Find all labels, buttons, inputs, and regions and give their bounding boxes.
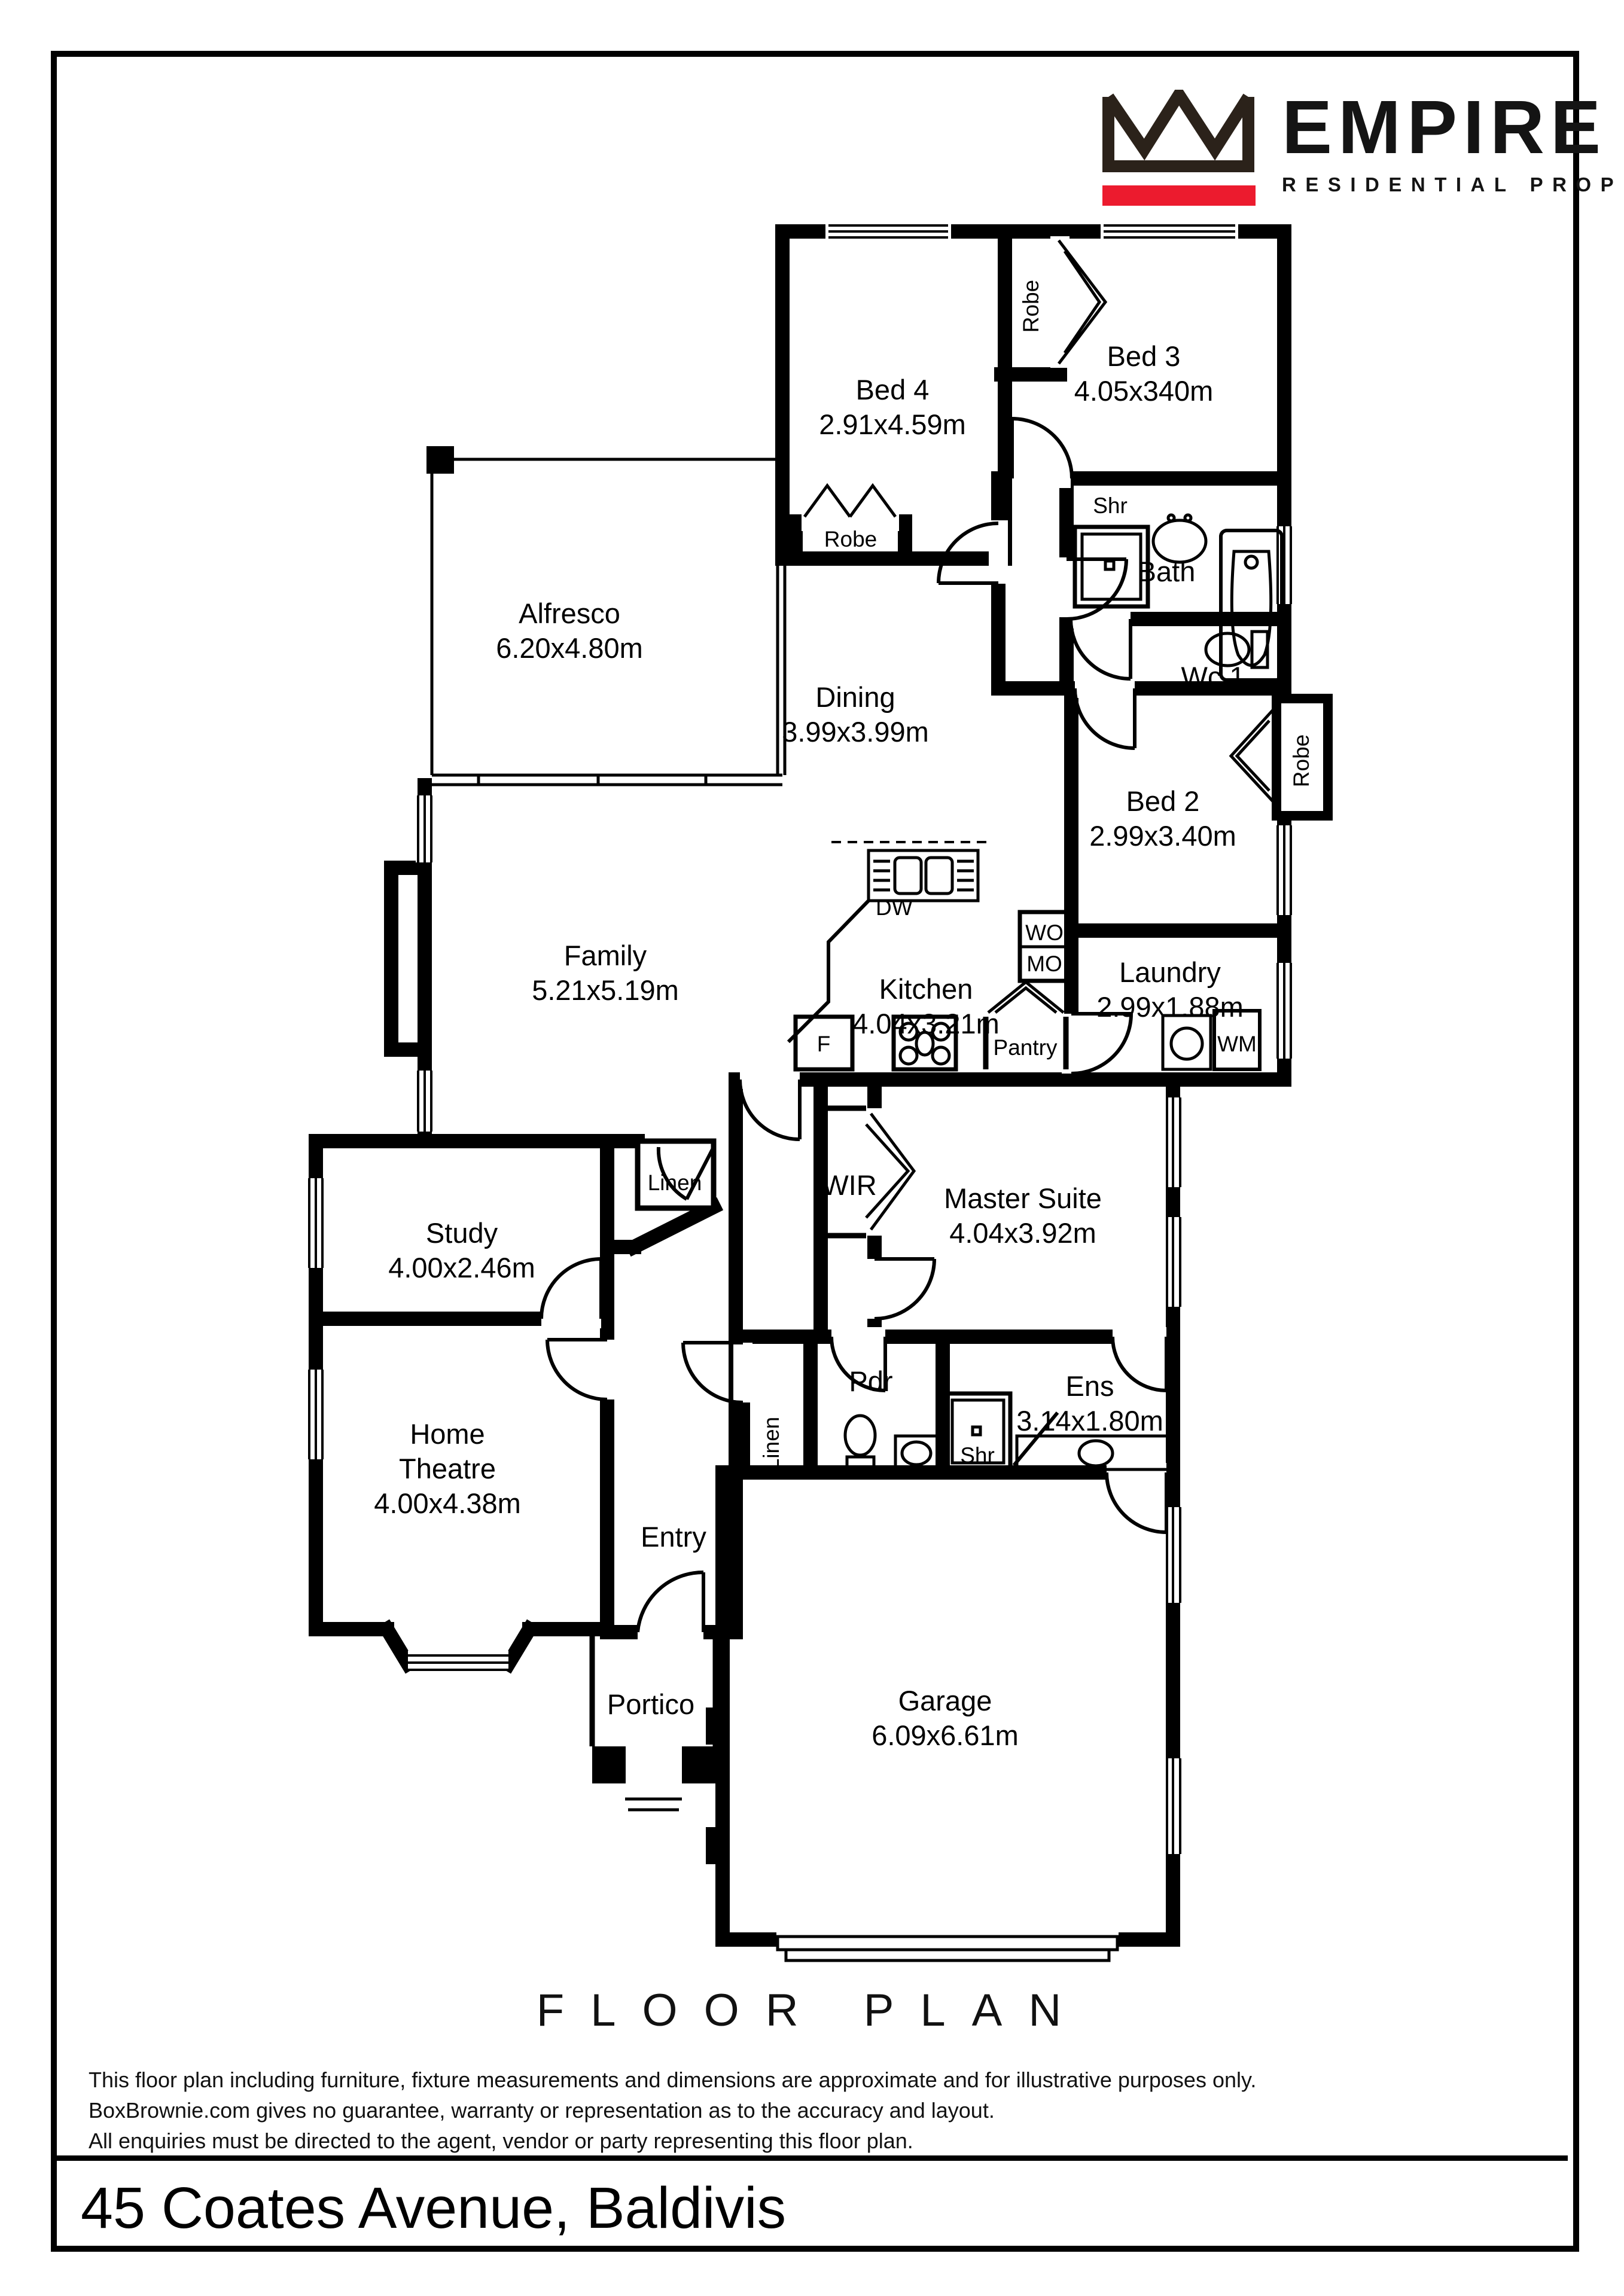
posts bbox=[592, 1707, 724, 1864]
label-wc1: Wc 1 bbox=[1181, 661, 1245, 693]
label-kitchen: Kitchen bbox=[879, 973, 973, 1005]
floor-plan-title: FLOOR PLAN bbox=[0, 1984, 1624, 2036]
label-ens-dims: 3.14x1.80m bbox=[1016, 1405, 1163, 1437]
label-bed3: Bed 3 bbox=[1107, 340, 1181, 372]
label-entry: Entry bbox=[641, 1521, 706, 1553]
label-fridge: F bbox=[817, 1032, 831, 1056]
label-master: Master Suite bbox=[944, 1182, 1102, 1214]
label-bed4-dims: 2.91x4.59m bbox=[819, 408, 966, 440]
label-study: Study bbox=[426, 1217, 498, 1249]
label-garage-dims: 6.09x6.61m bbox=[872, 1719, 1019, 1751]
label-bed4: Bed 4 bbox=[856, 374, 930, 405]
label-laundry-dims: 2.99x1.88m bbox=[1096, 991, 1244, 1023]
label-bed3-dims: 4.05x340m bbox=[1074, 375, 1214, 407]
label-home-theatre-dims: 4.00x4.38m bbox=[374, 1487, 521, 1519]
property-address: 45 Coates Avenue, Baldivis bbox=[81, 2175, 786, 2242]
floor-plan-page: EMPIRE RESIDENTIAL PROPERTY bbox=[0, 0, 1624, 2296]
label-bath: Bath bbox=[1138, 556, 1196, 587]
label-home-theatre-2: Theatre bbox=[399, 1453, 496, 1484]
label-robe-bed2: Robe bbox=[1289, 734, 1314, 787]
disclaimer: This floor plan including furniture, fix… bbox=[89, 2065, 1256, 2156]
label-laundry: Laundry bbox=[1119, 956, 1221, 988]
label-master-dims: 4.04x3.92m bbox=[949, 1217, 1096, 1249]
label-ens: Ens bbox=[1066, 1370, 1114, 1402]
label-robe-bed4: Robe bbox=[824, 527, 877, 551]
label-wm: WM bbox=[1217, 1032, 1257, 1056]
label-bed2: Bed 2 bbox=[1126, 785, 1200, 817]
label-wo: WO bbox=[1025, 920, 1064, 945]
label-dw: DW bbox=[876, 895, 913, 920]
disclaimer-line-3: All enquiries must be directed to the ag… bbox=[89, 2126, 1256, 2156]
label-dining-dims: 3.99x3.99m bbox=[782, 716, 929, 748]
label-portico: Portico bbox=[607, 1688, 694, 1720]
disclaimer-line-1: This floor plan including furniture, fix… bbox=[89, 2065, 1256, 2095]
disclaimer-line-2: BoxBrownie.com gives no guarantee, warra… bbox=[89, 2095, 1256, 2126]
footer-divider bbox=[53, 2155, 1568, 2161]
label-pdr: Pdr bbox=[849, 1365, 892, 1397]
label-family-dims: 5.21x5.19m bbox=[532, 974, 679, 1006]
label-garage: Garage bbox=[898, 1685, 992, 1716]
label-linen-2: Linen bbox=[759, 1417, 784, 1471]
label-alfresco-dims: 6.20x4.80m bbox=[496, 632, 643, 664]
label-pantry: Pantry bbox=[994, 1035, 1058, 1060]
floor-plan-drawing: Bed 4 2.91x4.59m Bed 3 4.05x340m Robe Ro… bbox=[0, 0, 1624, 2296]
windows bbox=[307, 225, 1293, 1854]
label-mo: MO bbox=[1026, 952, 1062, 976]
label-dining: Dining bbox=[815, 681, 895, 713]
label-robe-bed3: Robe bbox=[1019, 280, 1043, 333]
label-alfresco: Alfresco bbox=[519, 597, 620, 629]
label-shr-bath: Shr bbox=[1093, 493, 1128, 518]
label-family: Family bbox=[564, 940, 647, 971]
label-home-theatre-1: Home bbox=[410, 1418, 485, 1450]
label-shr-ens: Shr bbox=[960, 1443, 995, 1468]
label-wir: WIR bbox=[822, 1169, 876, 1201]
label-bed2-dims: 2.99x3.40m bbox=[1089, 820, 1236, 852]
label-study-dims: 4.00x2.46m bbox=[388, 1252, 535, 1283]
label-kitchen-dims: 4.04x3.21m bbox=[852, 1008, 1000, 1039]
label-linen-1: Linen bbox=[648, 1170, 702, 1195]
